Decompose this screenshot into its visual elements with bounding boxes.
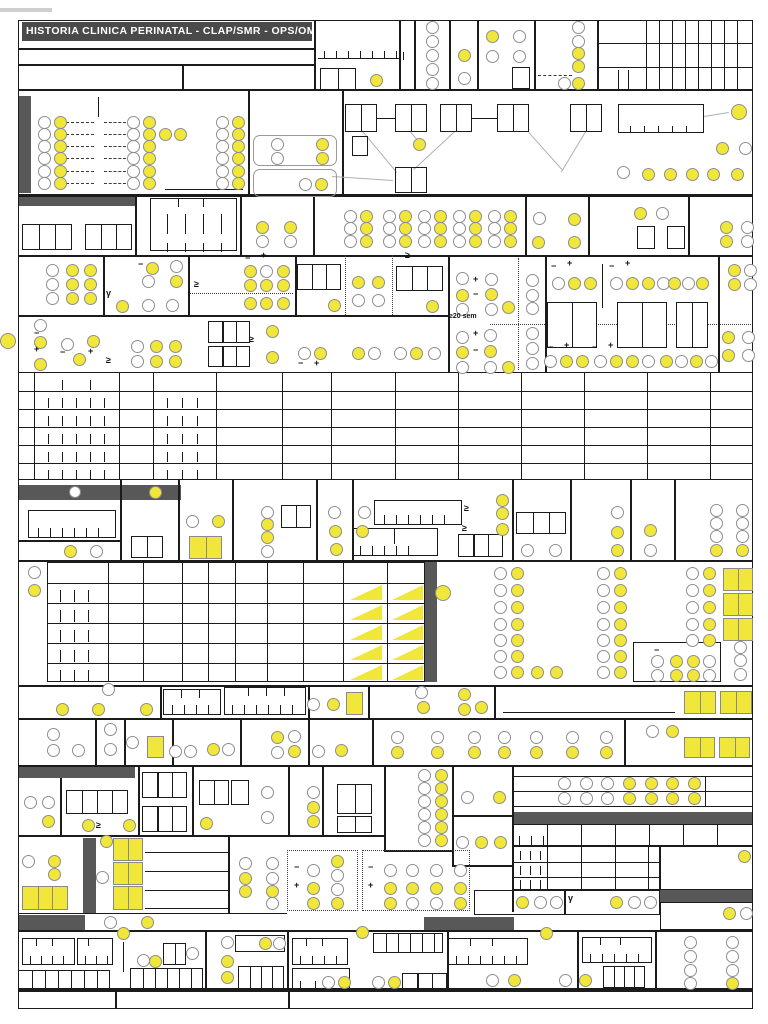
bubble[interactable] — [131, 355, 144, 368]
field-box[interactable] — [458, 534, 503, 557]
bubble[interactable] — [710, 530, 723, 543]
data-table[interactable] — [512, 846, 660, 890]
bubble[interactable] — [410, 347, 423, 360]
bubble[interactable] — [266, 897, 279, 910]
bubble[interactable] — [494, 567, 507, 580]
bubble[interactable] — [316, 152, 329, 165]
bubble[interactable] — [221, 955, 234, 968]
bubble[interactable] — [261, 518, 274, 531]
bubble[interactable] — [634, 207, 647, 220]
bubble[interactable] — [232, 165, 245, 178]
bubble[interactable] — [344, 210, 357, 223]
bubble[interactable] — [406, 882, 419, 895]
bubble[interactable] — [687, 655, 700, 668]
bubble[interactable] — [372, 276, 385, 289]
bubble[interactable] — [352, 276, 365, 289]
bubble[interactable] — [368, 347, 381, 360]
bubble[interactable] — [494, 584, 507, 597]
bubble[interactable] — [720, 221, 733, 234]
field-box[interactable] — [582, 937, 652, 963]
bubble[interactable] — [468, 731, 481, 744]
bubble[interactable] — [646, 725, 659, 738]
field-box[interactable] — [85, 224, 132, 250]
bubble[interactable] — [484, 329, 497, 342]
bubble[interactable] — [454, 864, 467, 877]
bubble[interactable] — [244, 279, 257, 292]
bubble[interactable] — [511, 650, 524, 663]
bubble[interactable] — [46, 292, 59, 305]
bubble[interactable] — [418, 782, 431, 795]
bubble[interactable] — [552, 277, 565, 290]
bubble[interactable] — [614, 567, 627, 580]
bubble[interactable] — [399, 235, 412, 248]
bubble[interactable] — [329, 525, 342, 538]
bubble[interactable] — [169, 340, 182, 353]
bubble[interactable] — [493, 791, 506, 804]
bubble[interactable] — [740, 907, 753, 920]
bubble[interactable] — [149, 486, 162, 499]
bubble[interactable] — [716, 142, 729, 155]
field-box[interactable] — [18, 991, 753, 1009]
field-box[interactable] — [208, 321, 250, 343]
bubble[interactable] — [435, 795, 448, 808]
bubble[interactable] — [703, 618, 716, 631]
field-box[interactable] — [337, 816, 372, 833]
bubble[interactable] — [127, 152, 140, 165]
bubble[interactable] — [496, 494, 509, 507]
field-box[interactable] — [292, 938, 348, 965]
field-box[interactable] — [396, 266, 443, 291]
bubble[interactable] — [645, 792, 658, 805]
field-box[interactable] — [163, 943, 186, 965]
bubble[interactable] — [486, 50, 499, 63]
bubble[interactable] — [703, 669, 716, 682]
bubble[interactable] — [498, 731, 511, 744]
bubble[interactable] — [742, 331, 755, 344]
bubble[interactable] — [338, 976, 351, 989]
bubble[interactable] — [54, 177, 67, 190]
bubble[interactable] — [186, 515, 199, 528]
bubble[interactable] — [498, 746, 511, 759]
bubble[interactable] — [710, 504, 723, 517]
bubble[interactable] — [184, 745, 197, 758]
bubble[interactable] — [66, 264, 79, 277]
bubble[interactable] — [90, 545, 103, 558]
bubble[interactable] — [316, 138, 329, 151]
highlight-box[interactable] — [113, 886, 143, 910]
bubble[interactable] — [534, 896, 547, 909]
bubble[interactable] — [668, 277, 681, 290]
bubble[interactable] — [56, 703, 69, 716]
bubble[interactable] — [453, 235, 466, 248]
bubble[interactable] — [307, 801, 320, 814]
bubble[interactable] — [549, 544, 562, 557]
bubble[interactable] — [494, 836, 507, 849]
bubble[interactable] — [707, 168, 720, 181]
bubble[interactable] — [28, 566, 41, 579]
bubble[interactable] — [360, 235, 373, 248]
bubble[interactable] — [456, 346, 469, 359]
bubble[interactable] — [532, 236, 545, 249]
bubble[interactable] — [266, 351, 279, 364]
bubble[interactable] — [356, 926, 369, 939]
bubble[interactable] — [431, 731, 444, 744]
bubble[interactable] — [426, 300, 439, 313]
bubble[interactable] — [143, 140, 156, 153]
bubble[interactable] — [614, 618, 627, 631]
bubble[interactable] — [131, 340, 144, 353]
bubble[interactable] — [614, 584, 627, 597]
bubble[interactable] — [331, 855, 344, 868]
field-box[interactable] — [374, 500, 462, 525]
bubble[interactable] — [502, 301, 515, 314]
bubble[interactable] — [705, 355, 718, 368]
bubble[interactable] — [458, 72, 471, 85]
bubble[interactable] — [102, 683, 115, 696]
bubble[interactable] — [143, 116, 156, 129]
bubble[interactable] — [686, 567, 699, 580]
bubble[interactable] — [418, 210, 431, 223]
bubble[interactable] — [391, 731, 404, 744]
bubble[interactable] — [104, 916, 117, 929]
highlight-box[interactable] — [723, 618, 753, 641]
bubble[interactable] — [597, 618, 610, 631]
bubble[interactable] — [426, 35, 439, 48]
field-box[interactable] — [297, 264, 341, 290]
field-box[interactable] — [18, 20, 315, 90]
bubble[interactable] — [614, 650, 627, 663]
bubble[interactable] — [384, 864, 397, 877]
highlight-box[interactable] — [189, 536, 222, 559]
bubble[interactable] — [703, 634, 716, 647]
bubble[interactable] — [69, 486, 81, 498]
highlight-box[interactable] — [346, 692, 363, 715]
bubble[interactable] — [344, 235, 357, 248]
bubble[interactable] — [54, 152, 67, 165]
bubble[interactable] — [458, 49, 471, 62]
field-box[interactable] — [440, 104, 472, 132]
bubble[interactable] — [684, 977, 697, 990]
bubble[interactable] — [146, 262, 159, 275]
field-box[interactable] — [231, 780, 249, 805]
bubble[interactable] — [623, 792, 636, 805]
data-table[interactable] — [47, 562, 425, 682]
bubble[interactable] — [597, 601, 610, 614]
bubble[interactable] — [42, 796, 55, 809]
bubble[interactable] — [597, 650, 610, 663]
bubble[interactable] — [454, 882, 467, 895]
bubble[interactable] — [690, 355, 703, 368]
bubble[interactable] — [741, 235, 754, 248]
bubble[interactable] — [511, 567, 524, 580]
bubble[interactable] — [614, 634, 627, 647]
bubble[interactable] — [170, 275, 183, 288]
bubble[interactable] — [572, 47, 585, 60]
bubble[interactable] — [142, 275, 155, 288]
bubble[interactable] — [170, 260, 183, 273]
bubble[interactable] — [485, 303, 498, 316]
bubble[interactable] — [494, 601, 507, 614]
bubble[interactable] — [456, 361, 469, 374]
bubble[interactable] — [384, 897, 397, 910]
bubble[interactable] — [261, 531, 274, 544]
bubble[interactable] — [687, 669, 700, 682]
bubble[interactable] — [273, 937, 286, 950]
bubble[interactable] — [271, 138, 284, 151]
bubble[interactable] — [34, 358, 47, 371]
bubble[interactable] — [742, 349, 755, 362]
bubble[interactable] — [559, 974, 572, 987]
bubble[interactable] — [456, 836, 469, 849]
bubble[interactable] — [530, 731, 543, 744]
bubble[interactable] — [100, 835, 113, 848]
bubble[interactable] — [488, 222, 501, 235]
bubble[interactable] — [399, 210, 412, 223]
bubble[interactable] — [372, 976, 385, 989]
field-box[interactable] — [667, 226, 685, 249]
bubble[interactable] — [142, 299, 155, 312]
bubble[interactable] — [327, 698, 340, 711]
bubble[interactable] — [418, 769, 431, 782]
bubble[interactable] — [614, 601, 627, 614]
bubble[interactable] — [485, 288, 498, 301]
field-box[interactable] — [22, 938, 75, 965]
bubble[interactable] — [734, 641, 747, 654]
bubble[interactable] — [516, 896, 529, 909]
bubble[interactable] — [726, 950, 739, 963]
bubble[interactable] — [186, 947, 199, 960]
bubble[interactable] — [684, 950, 697, 963]
bubble[interactable] — [216, 116, 229, 129]
bubble[interactable] — [232, 177, 245, 190]
bubble[interactable] — [383, 210, 396, 223]
bubble[interactable] — [222, 743, 235, 756]
bubble[interactable] — [307, 786, 320, 799]
bubble[interactable] — [307, 864, 320, 877]
field-box[interactable] — [77, 938, 113, 965]
bubble[interactable] — [200, 817, 213, 830]
bubble[interactable] — [123, 819, 136, 832]
bubble[interactable] — [597, 666, 610, 679]
bubble[interactable] — [418, 795, 431, 808]
bubble[interactable] — [104, 743, 117, 756]
bubble[interactable] — [734, 668, 747, 681]
bubble[interactable] — [703, 584, 716, 597]
bubble[interactable] — [221, 936, 234, 949]
field-box[interactable] — [142, 806, 187, 832]
field-box[interactable] — [337, 784, 372, 814]
bubble[interactable] — [485, 273, 498, 286]
field-box[interactable] — [402, 973, 447, 990]
bubble[interactable] — [600, 731, 613, 744]
field-box[interactable] — [660, 902, 753, 930]
bubble[interactable] — [723, 907, 736, 920]
bubble[interactable] — [597, 634, 610, 647]
bubble[interactable] — [617, 166, 630, 179]
bubble[interactable] — [417, 701, 430, 714]
bubble[interactable] — [260, 279, 273, 292]
bubble[interactable] — [406, 897, 419, 910]
bubble[interactable] — [628, 896, 641, 909]
bubble[interactable] — [72, 744, 85, 757]
field-box[interactable] — [497, 104, 529, 132]
bubble[interactable] — [271, 746, 284, 759]
bubble[interactable] — [688, 792, 701, 805]
bubble[interactable] — [623, 777, 636, 790]
bubble[interactable] — [504, 210, 517, 223]
bubble[interactable] — [486, 974, 499, 987]
data-table[interactable] — [512, 824, 753, 846]
bubble[interactable] — [469, 235, 482, 248]
bubble[interactable] — [614, 666, 627, 679]
field-box[interactable] — [199, 780, 229, 805]
bubble[interactable] — [388, 976, 401, 989]
bubble[interactable] — [372, 294, 385, 307]
bubble[interactable] — [453, 210, 466, 223]
bubble[interactable] — [330, 543, 343, 556]
bubble[interactable] — [494, 666, 507, 679]
bubble[interactable] — [383, 222, 396, 235]
bubble[interactable] — [435, 769, 448, 782]
data-table[interactable] — [130, 968, 203, 990]
bubble[interactable] — [256, 221, 269, 234]
bubble[interactable] — [169, 355, 182, 368]
bubble[interactable] — [54, 165, 67, 178]
highlight-box[interactable] — [684, 737, 715, 758]
bubble[interactable] — [239, 857, 252, 870]
field-box[interactable] — [150, 198, 237, 251]
bubble[interactable] — [726, 964, 739, 977]
bubble[interactable] — [720, 235, 733, 248]
bubble[interactable] — [550, 896, 563, 909]
bubble[interactable] — [511, 634, 524, 647]
bubble[interactable] — [494, 634, 507, 647]
bubble[interactable] — [513, 30, 526, 43]
bubble[interactable] — [266, 325, 279, 338]
bubble[interactable] — [504, 235, 517, 248]
field-box[interactable] — [570, 104, 602, 132]
bubble[interactable] — [328, 299, 341, 312]
bubble[interactable] — [277, 297, 290, 310]
bubble[interactable] — [143, 152, 156, 165]
bubble[interactable] — [597, 567, 610, 580]
bubble[interactable] — [572, 60, 585, 73]
bubble[interactable] — [360, 222, 373, 235]
bubble[interactable] — [335, 744, 348, 757]
bubble[interactable] — [486, 30, 499, 43]
field-box[interactable] — [395, 104, 427, 132]
bubble[interactable] — [722, 349, 735, 362]
bubble[interactable] — [458, 688, 471, 701]
bubble[interactable] — [726, 977, 739, 990]
bubble[interactable] — [488, 235, 501, 248]
bubble[interactable] — [307, 882, 320, 895]
bubble[interactable] — [288, 745, 301, 758]
bubble[interactable] — [601, 777, 614, 790]
bubble[interactable] — [418, 222, 431, 235]
bubble[interactable] — [127, 128, 140, 141]
field-box[interactable] — [547, 302, 597, 348]
bubble[interactable] — [626, 355, 639, 368]
bubble[interactable] — [651, 669, 664, 682]
bubble[interactable] — [568, 236, 581, 249]
bubble[interactable] — [42, 815, 55, 828]
bubble[interactable] — [566, 731, 579, 744]
bubble[interactable] — [47, 744, 60, 757]
bubble[interactable] — [418, 808, 431, 821]
bubble[interactable] — [24, 796, 37, 809]
data-table[interactable] — [18, 372, 753, 480]
bubble[interactable] — [216, 177, 229, 190]
bubble[interactable] — [38, 165, 51, 178]
bubble[interactable] — [315, 178, 328, 191]
bubble[interactable] — [169, 745, 182, 758]
bubble[interactable] — [651, 655, 664, 668]
bubble[interactable] — [594, 355, 607, 368]
highlight-box[interactable] — [113, 862, 143, 885]
bubble[interactable] — [484, 361, 497, 374]
bubble[interactable] — [726, 936, 739, 949]
bubble[interactable] — [307, 698, 320, 711]
bubble[interactable] — [46, 264, 59, 277]
bubble[interactable] — [544, 355, 557, 368]
bubble[interactable] — [461, 791, 474, 804]
bubble[interactable] — [666, 792, 679, 805]
bubble[interactable] — [418, 235, 431, 248]
field-box[interactable] — [400, 20, 415, 90]
bubble[interactable] — [656, 207, 669, 220]
bubble[interactable] — [580, 792, 593, 805]
bubble[interactable] — [64, 545, 77, 558]
bubble[interactable] — [117, 927, 130, 940]
bubble[interactable] — [572, 35, 585, 48]
bubble[interactable] — [216, 165, 229, 178]
bubble[interactable] — [684, 964, 697, 977]
bubble[interactable] — [261, 545, 274, 558]
bubble[interactable] — [530, 746, 543, 759]
bubble[interactable] — [469, 210, 482, 223]
bubble[interactable] — [526, 289, 539, 302]
bubble[interactable] — [0, 333, 16, 349]
bubble[interactable] — [415, 686, 428, 699]
bubble[interactable] — [84, 292, 97, 305]
bubble[interactable] — [126, 736, 139, 749]
bubble[interactable] — [710, 517, 723, 530]
bubble[interactable] — [430, 882, 443, 895]
bubble[interactable] — [141, 916, 154, 929]
bubble[interactable] — [610, 277, 623, 290]
bubble[interactable] — [244, 265, 257, 278]
bubble[interactable] — [84, 264, 97, 277]
highlight-box[interactable] — [723, 568, 753, 591]
bubble[interactable] — [568, 277, 581, 290]
bubble[interactable] — [703, 655, 716, 668]
bubble[interactable] — [127, 116, 140, 129]
bubble[interactable] — [579, 974, 592, 987]
bubble[interactable] — [670, 669, 683, 682]
highlight-box[interactable] — [22, 886, 68, 910]
bubble[interactable] — [738, 850, 751, 863]
bubble[interactable] — [728, 264, 741, 277]
bubble[interactable] — [744, 264, 757, 277]
bubble[interactable] — [686, 584, 699, 597]
bubble[interactable] — [239, 885, 252, 898]
bubble[interactable] — [664, 168, 677, 181]
bubble[interactable] — [84, 278, 97, 291]
field-box[interactable] — [603, 966, 645, 988]
field-box[interactable] — [516, 512, 566, 534]
bubble[interactable] — [540, 927, 553, 940]
